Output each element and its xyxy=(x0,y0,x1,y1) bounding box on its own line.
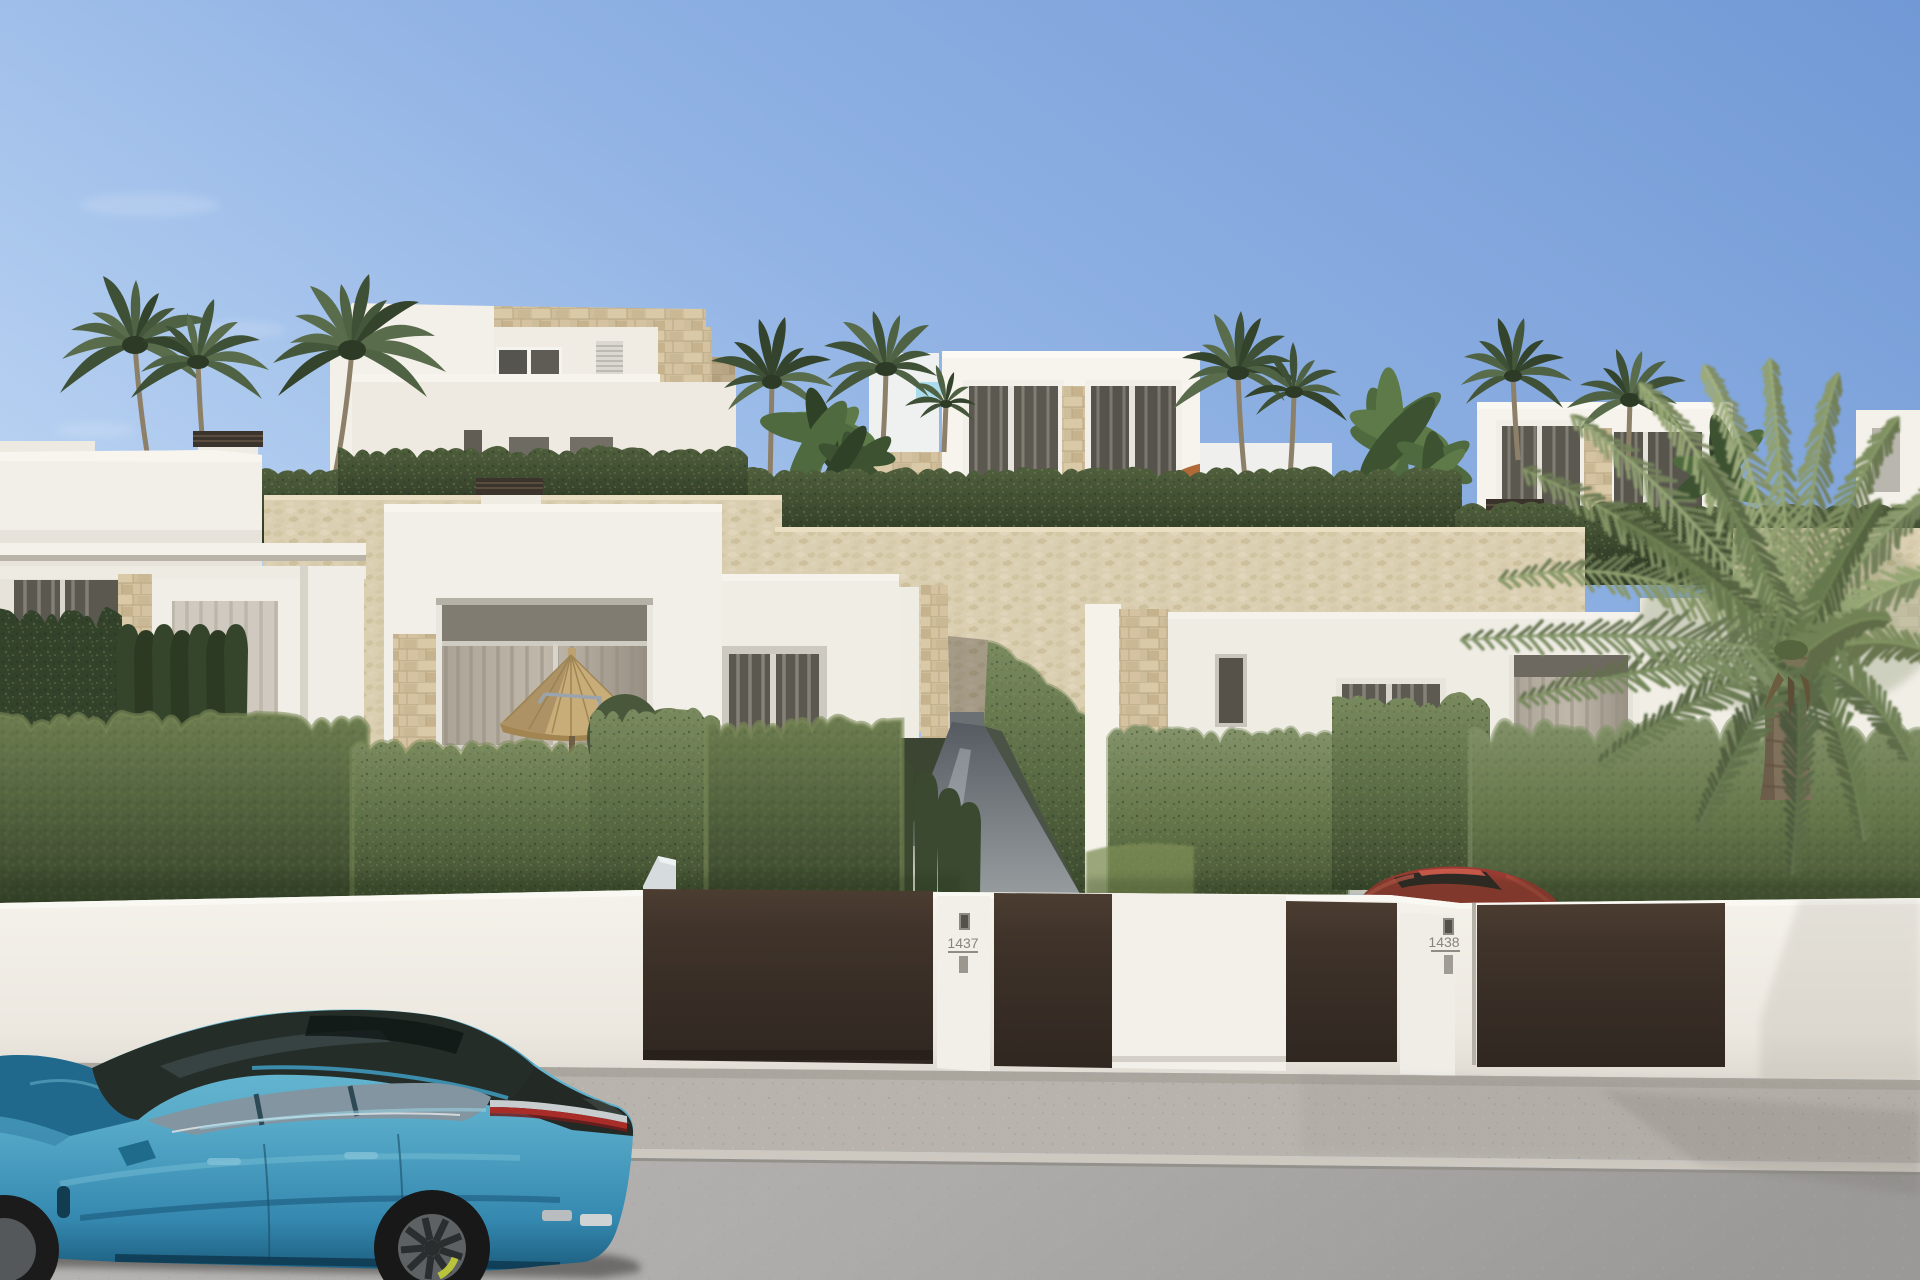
svg-text:1438: 1438 xyxy=(1428,934,1459,950)
svg-text:1437: 1437 xyxy=(947,935,978,951)
